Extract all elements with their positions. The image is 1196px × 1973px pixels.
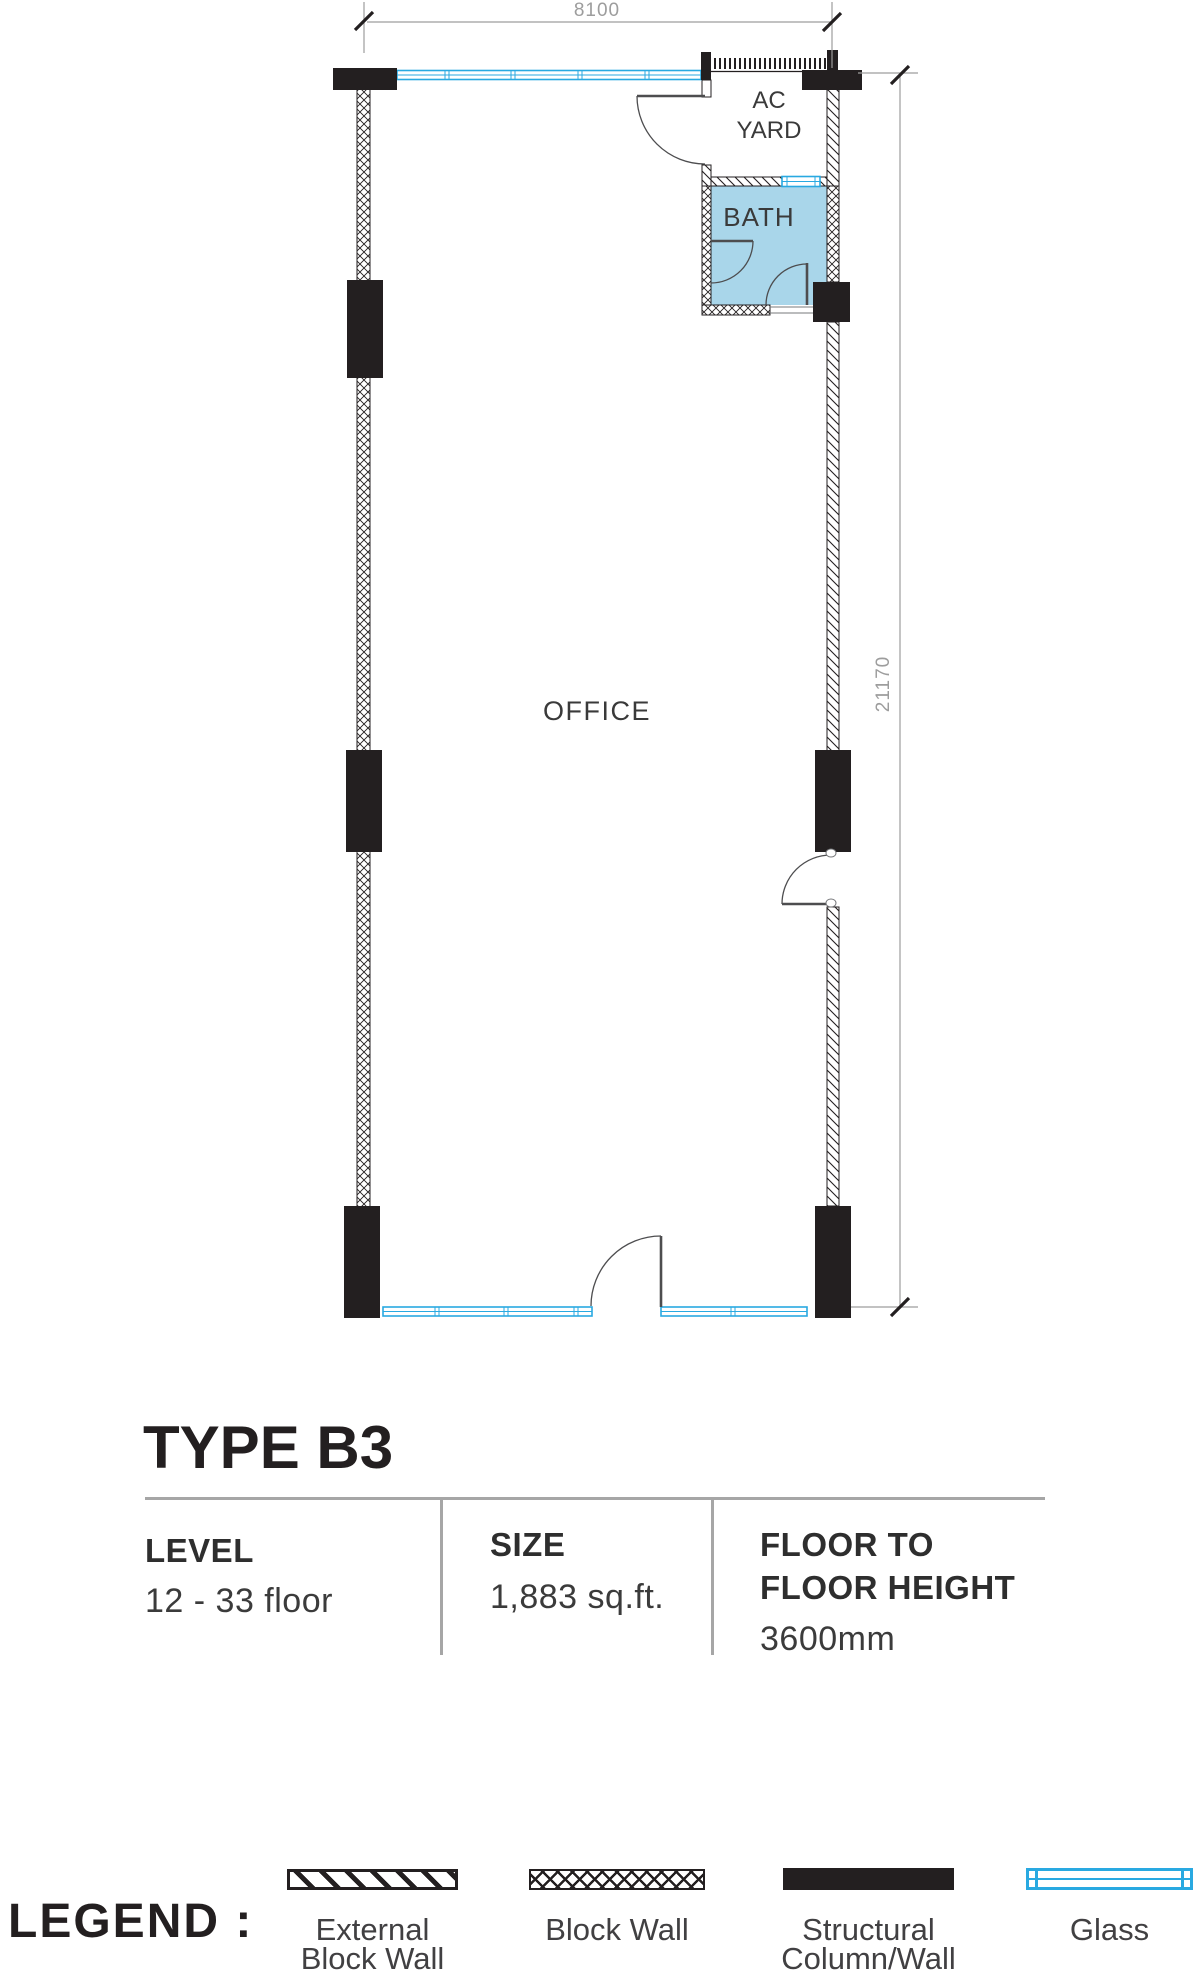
external-block-wall-swatch [287,1869,458,1890]
info-divider-vertical-1 [440,1499,443,1655]
bath-bottom-wall [702,305,770,315]
glass-swatch [1026,1868,1193,1890]
legend-label-external-block-wall: External Block Wall [287,1915,458,1973]
column [344,1206,380,1318]
info-divider-vertical-2 [711,1499,714,1655]
info-height-value: 3600mm [760,1620,895,1659]
ac-yard-door [637,96,705,164]
bath-door-threshold [770,307,813,313]
structural-column-wall-swatch [783,1868,954,1890]
room-label-bath: BATH [703,201,815,234]
column [815,750,851,852]
info-level-value: 12 - 33 floor [145,1582,333,1621]
column [346,750,382,852]
right-wall-door [782,849,836,907]
legend-label-block-wall: Block Wall [529,1915,705,1944]
info-level-label: LEVEL [145,1530,254,1573]
column [347,280,383,378]
block-wall-swatch [529,1869,705,1890]
dimension-width-label: 8100 [547,0,647,22]
right-external-wall-low [827,907,839,1206]
info-size-label: SIZE [490,1524,565,1567]
right-external-wall-top [827,88,839,186]
yard-bath-wall-right [820,177,827,186]
info-height-label: FLOOR TO FLOOR HEIGHT [760,1524,1015,1610]
column [333,68,397,90]
bottom-entry-door [591,1236,661,1307]
floor-plan-page: 8100 21170 AC YARD BATH OFFICE TYPE B3 L… [0,0,1196,1973]
column [813,282,850,322]
right-block-wall-bath [827,186,839,282]
info-size-value: 1,883 sq.ft. [490,1578,664,1617]
yard-bath-wall-left [711,177,782,186]
room-label-office: OFFICE [517,695,677,729]
floor-plan-drawing [0,0,1196,1973]
column [701,52,711,80]
yard-wall-lower [702,165,711,186]
info-divider-horizontal [145,1497,1045,1500]
dimension-height-label: 21170 [873,639,895,729]
legend-title: LEGEND : [8,1898,253,1946]
room-label-ac-yard: AC YARD [713,86,825,146]
column [815,1206,851,1318]
legend-label-structural-column-wall: Structural Column/Wall [758,1915,979,1973]
yard-wall-stub [702,80,711,97]
legend-label-glass: Glass [1026,1915,1193,1944]
right-external-wall-mid [827,322,839,755]
unit-type-title: TYPE B3 [143,1418,393,1478]
left-block-wall [357,88,370,1310]
